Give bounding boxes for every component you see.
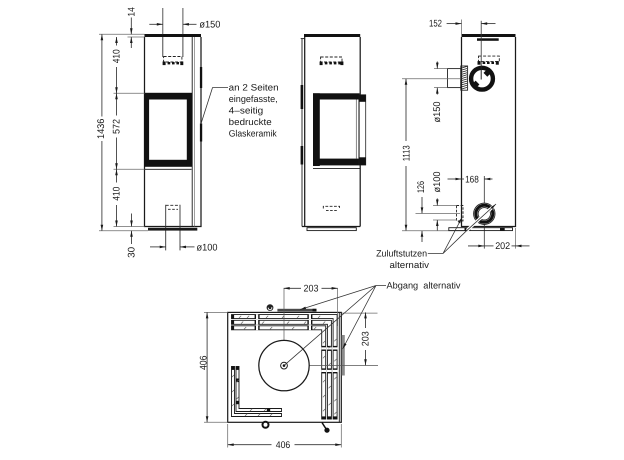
svg-text:152: 152 [429, 19, 442, 30]
svg-text:406: 406 [276, 440, 291, 451]
svg-text:Glaskeramik: Glaskeramik [229, 129, 277, 139]
svg-text:ø150: ø150 [199, 20, 221, 31]
svg-text:ø100: ø100 [432, 171, 443, 193]
svg-text:410: 410 [112, 186, 123, 201]
svg-text:30: 30 [127, 246, 138, 258]
svg-text:203: 203 [361, 331, 372, 346]
svg-text:ø150: ø150 [432, 101, 443, 123]
svg-text:126: 126 [416, 181, 427, 193]
svg-text:406: 406 [199, 356, 210, 371]
svg-text:ø100: ø100 [197, 242, 219, 253]
svg-text:1436: 1436 [96, 119, 107, 140]
svg-text:14: 14 [127, 7, 138, 17]
svg-text:eingefasste,: eingefasste, [229, 94, 278, 104]
svg-text:1113: 1113 [401, 145, 412, 161]
svg-text:an 2 Seiten: an 2 Seiten [229, 83, 279, 93]
svg-text:alternativ: alternativ [390, 260, 430, 270]
svg-text:202: 202 [495, 241, 510, 252]
svg-text:4–seitig: 4–seitig [229, 106, 264, 116]
svg-text:410: 410 [112, 49, 123, 64]
svg-text:203: 203 [304, 284, 319, 295]
svg-text:Abgang alternativ: Abgang alternativ [387, 281, 461, 291]
svg-text:168: 168 [465, 174, 479, 185]
svg-text:572: 572 [112, 119, 123, 134]
svg-text:bedruckte: bedruckte [229, 117, 272, 127]
svg-text:Zuluftstutzen: Zuluftstutzen [376, 249, 427, 259]
